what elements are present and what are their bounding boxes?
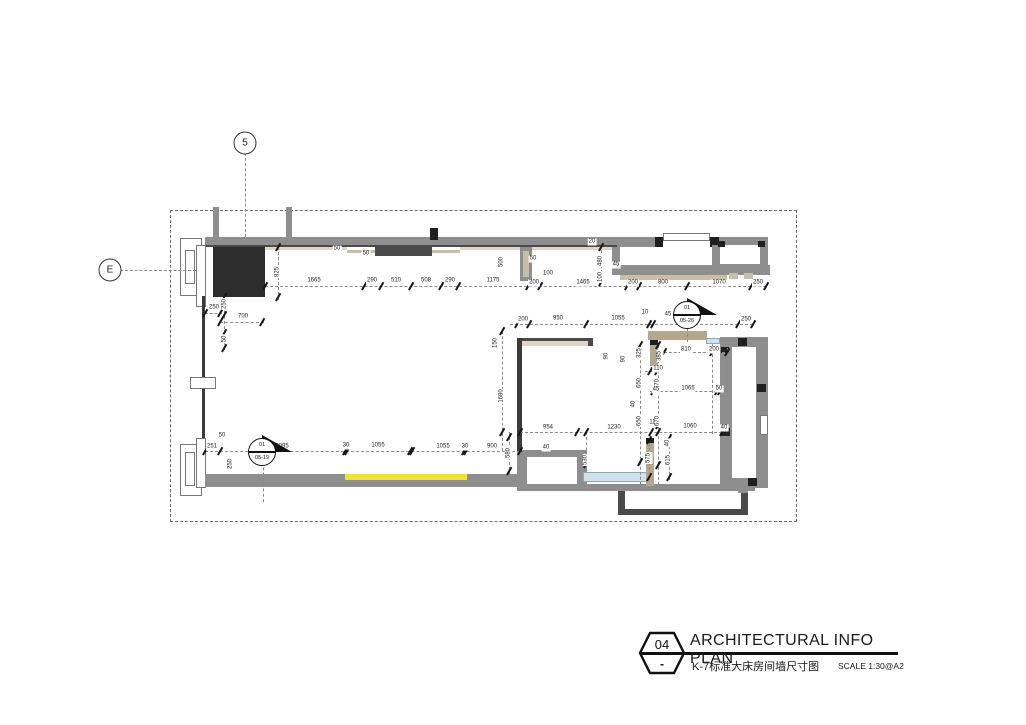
dimension-label: 40: [542, 445, 551, 452]
dimension-label: 100: [598, 271, 605, 283]
dimension-label: 40: [631, 400, 638, 409]
wall-segment: [213, 207, 219, 237]
dimension-label: 50: [333, 246, 342, 253]
dimension-label: 200: [517, 317, 529, 324]
dimension-label: 110: [652, 366, 664, 373]
dimension-label: 500: [499, 256, 506, 268]
dimension-label: 50: [362, 251, 371, 258]
dimension-label: 325: [637, 347, 644, 359]
wall-segment: [757, 384, 766, 392]
dimension-label: 1055: [370, 443, 385, 450]
dimension-label: 30: [342, 443, 351, 450]
section-sheet: 05-19: [255, 455, 269, 461]
dimension-label: 825: [275, 266, 282, 278]
dimension-label: 954: [542, 425, 554, 432]
dimension-line: [265, 286, 766, 287]
dimension-label: 50: [529, 256, 538, 263]
wall-segment: [286, 207, 292, 237]
dimension-label: 700: [237, 314, 249, 321]
architectural-floor-plan-sheet: 1665290510508290117520014652008001070250…: [0, 0, 1026, 725]
wall-segment: [430, 228, 438, 240]
dimension-label: 900: [486, 444, 498, 451]
dimension-label: 20: [588, 239, 597, 246]
dimension-label: 510: [390, 278, 402, 285]
wall-segment: [756, 340, 768, 483]
section-marker-divider: [673, 314, 701, 316]
dimension-label: 385: [657, 350, 664, 362]
wall-segment: [729, 273, 738, 279]
dimension-label: 1060: [682, 424, 697, 431]
dimension-label: 40: [665, 439, 672, 448]
dimension-label: 90: [621, 355, 628, 364]
wall-segment: [432, 250, 460, 253]
dimension-label: 200: [708, 347, 720, 354]
dimension-label: 250: [752, 280, 764, 287]
wall-segment: [617, 237, 655, 247]
dimension-line: [263, 462, 264, 502]
section-sheet: 05-26: [680, 318, 694, 324]
dimension-line: [664, 352, 730, 353]
wall-segment: [185, 452, 195, 486]
dimension-line: [712, 344, 713, 434]
dimension-label: 90: [604, 352, 611, 361]
wall-segment: [205, 474, 350, 487]
dimension-label: 250: [208, 305, 220, 312]
dimension-label: 40: [720, 425, 729, 432]
wall-segment: [744, 273, 753, 279]
dimension-label: 30: [461, 444, 470, 451]
dimension-label: 50: [715, 386, 724, 393]
wall-segment: [718, 241, 725, 247]
dimension-label: 1230: [606, 425, 621, 432]
dimension-label: 1465: [575, 280, 590, 287]
wall-segment: [517, 450, 527, 486]
wall-segment: [760, 415, 768, 435]
wall-segment: [648, 331, 707, 340]
dimension-label: 670: [655, 415, 662, 427]
dimension-label: 200: [528, 280, 540, 287]
plan-scale: SCALE 1:30@A2: [838, 661, 904, 671]
wall-segment: [706, 338, 720, 344]
wall-segment: [738, 338, 747, 346]
dimension-label: 650: [637, 415, 644, 427]
dimension-label: 50: [218, 433, 227, 440]
wall-segment: [213, 247, 265, 297]
dimension-label: 615: [666, 454, 673, 466]
grid-marker-E: E: [99, 259, 122, 282]
wall-segment: [522, 341, 593, 346]
grid-marker-5: 5: [234, 132, 257, 155]
dimension-label: 290: [366, 278, 378, 285]
wall-segment: [185, 250, 195, 284]
wall-segment: [738, 488, 748, 493]
wall-segment: [588, 338, 593, 346]
wall-segment: [467, 474, 520, 487]
wall-segment: [190, 377, 216, 389]
dimension-label: 1680: [499, 388, 506, 403]
dimension-label: 150: [493, 337, 500, 349]
title-block: 04 - ARCHITECTURAL INFO PLAN K-7标准大床房间墙尺…: [638, 631, 906, 681]
wall-segment: [741, 491, 748, 514]
dimension-line: [120, 270, 196, 271]
wall-segment: [375, 247, 432, 256]
dimension-line: [727, 348, 728, 394]
wall-segment: [748, 478, 757, 486]
dimension-label: 200: [627, 280, 639, 287]
wall-segment: [618, 509, 748, 515]
dimension-label: 530: [583, 454, 590, 466]
wall-segment: [758, 241, 765, 247]
dimension-line: [245, 153, 246, 237]
dimension-label: 45: [612, 262, 621, 269]
dimension-label: 100: [542, 271, 554, 278]
section-marker-divider: [248, 451, 276, 453]
wall-segment: [720, 347, 732, 478]
dimension-line: [220, 322, 264, 323]
dimension-label: 800: [657, 280, 669, 287]
dimension-label: 575: [646, 452, 653, 464]
dimension-label: 580: [506, 447, 513, 459]
dimension-label: 650: [637, 377, 644, 389]
dimension-label: 50: [222, 335, 229, 344]
dimension-label: 1055: [435, 444, 450, 451]
dimension-label: 1055: [610, 316, 625, 323]
wall-segment: [720, 478, 768, 488]
dimension-label: 1065: [680, 386, 695, 393]
dimension-label: 1665: [306, 278, 321, 285]
dimension-label: 950: [552, 316, 564, 323]
dimension-label: 508: [420, 278, 432, 285]
dimension-label: 290: [444, 278, 456, 285]
section-number: 01: [684, 305, 690, 311]
dimension-label: 250: [740, 317, 752, 324]
dimension-label: 810: [680, 347, 692, 354]
plan-subtitle: K-7标准大床房间墙尺寸图: [692, 658, 819, 674]
dimension-label: 250: [222, 298, 229, 310]
dimension-label: 480: [598, 255, 605, 267]
dimension-line: [687, 328, 688, 342]
wall-segment: [345, 480, 467, 487]
dimension-line: [520, 432, 722, 433]
dimension-line: [510, 324, 753, 325]
wall-segment: [663, 233, 710, 241]
dimension-label: 251: [206, 444, 218, 451]
dimension-label: 250: [228, 458, 235, 470]
dimension-label: 45: [652, 387, 661, 394]
detail-number: 04: [649, 637, 675, 652]
section-number: 01: [259, 442, 265, 448]
dimension-label: 1175: [486, 278, 501, 285]
dimension-label: 10: [641, 310, 650, 317]
dimension-label: 1070: [711, 280, 726, 287]
wall-segment: [460, 247, 520, 250]
detail-sheet-dash: -: [649, 657, 675, 671]
wall-segment: [655, 237, 663, 247]
dimension-label: 45: [664, 312, 673, 319]
